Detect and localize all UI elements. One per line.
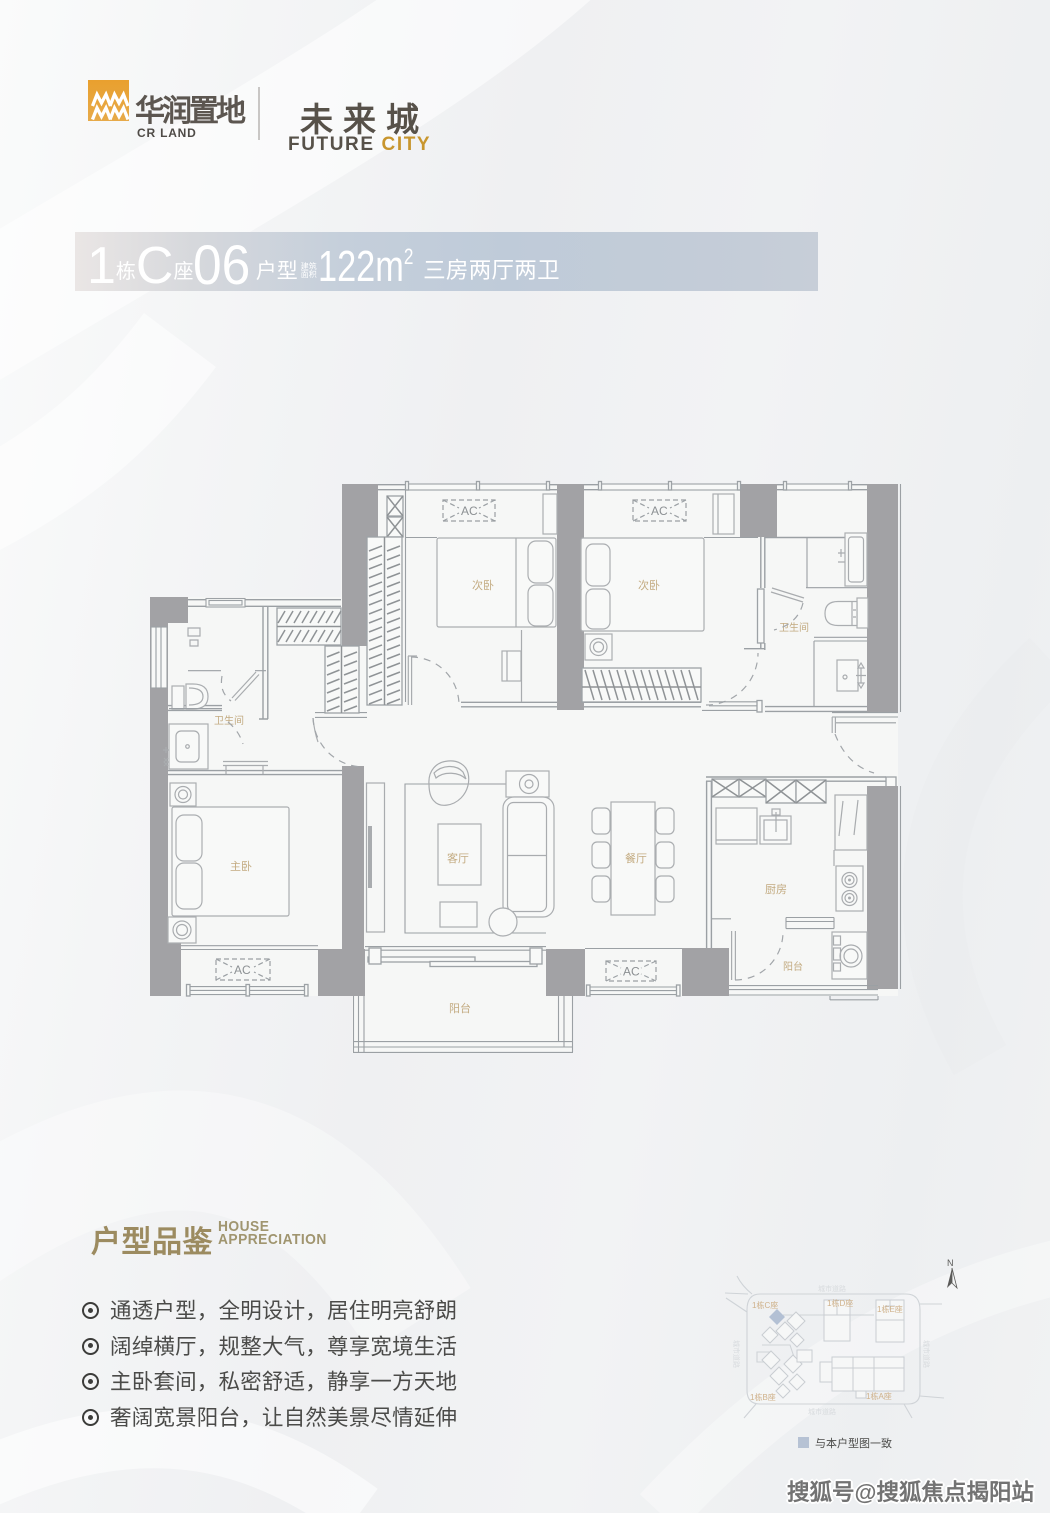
svg-text:城市道路: 城市道路 <box>818 1284 846 1293</box>
svg-text:AC: AC <box>234 963 251 977</box>
svg-text:城市道路: 城市道路 <box>922 1340 931 1368</box>
svg-text:N: N <box>947 1258 954 1268</box>
svg-text:与本户型图一致: 与本户型图一致 <box>815 1436 892 1450</box>
svg-text:餐厅: 餐厅 <box>625 851 647 865</box>
svg-text:卫生间: 卫生间 <box>779 621 809 634</box>
svg-text:次卧: 次卧 <box>472 578 494 592</box>
svg-text:AC: AC <box>623 965 640 979</box>
svg-text:厨房: 厨房 <box>765 883 787 896</box>
svg-text:卫生间: 卫生间 <box>214 714 244 727</box>
svg-text:1栋D座: 1栋D座 <box>827 1298 853 1308</box>
svg-text:1栋C座: 1栋C座 <box>752 1300 778 1310</box>
svg-text:阳台: 阳台 <box>783 960 803 973</box>
svg-text:城市道路: 城市道路 <box>808 1407 836 1416</box>
svg-text:次卧: 次卧 <box>638 578 660 592</box>
svg-text:客厅: 客厅 <box>447 851 469 865</box>
svg-text:城市道路: 城市道路 <box>732 1340 741 1368</box>
svg-text:AC: AC <box>461 504 478 518</box>
svg-text:1栋B座: 1栋B座 <box>750 1392 776 1402</box>
svg-text:AC: AC <box>651 504 668 518</box>
svg-text:主卧: 主卧 <box>230 860 252 873</box>
svg-text:1栋E座: 1栋E座 <box>877 1304 903 1314</box>
svg-text:1栋A座: 1栋A座 <box>866 1391 892 1401</box>
svg-text:阳台: 阳台 <box>449 1001 471 1015</box>
